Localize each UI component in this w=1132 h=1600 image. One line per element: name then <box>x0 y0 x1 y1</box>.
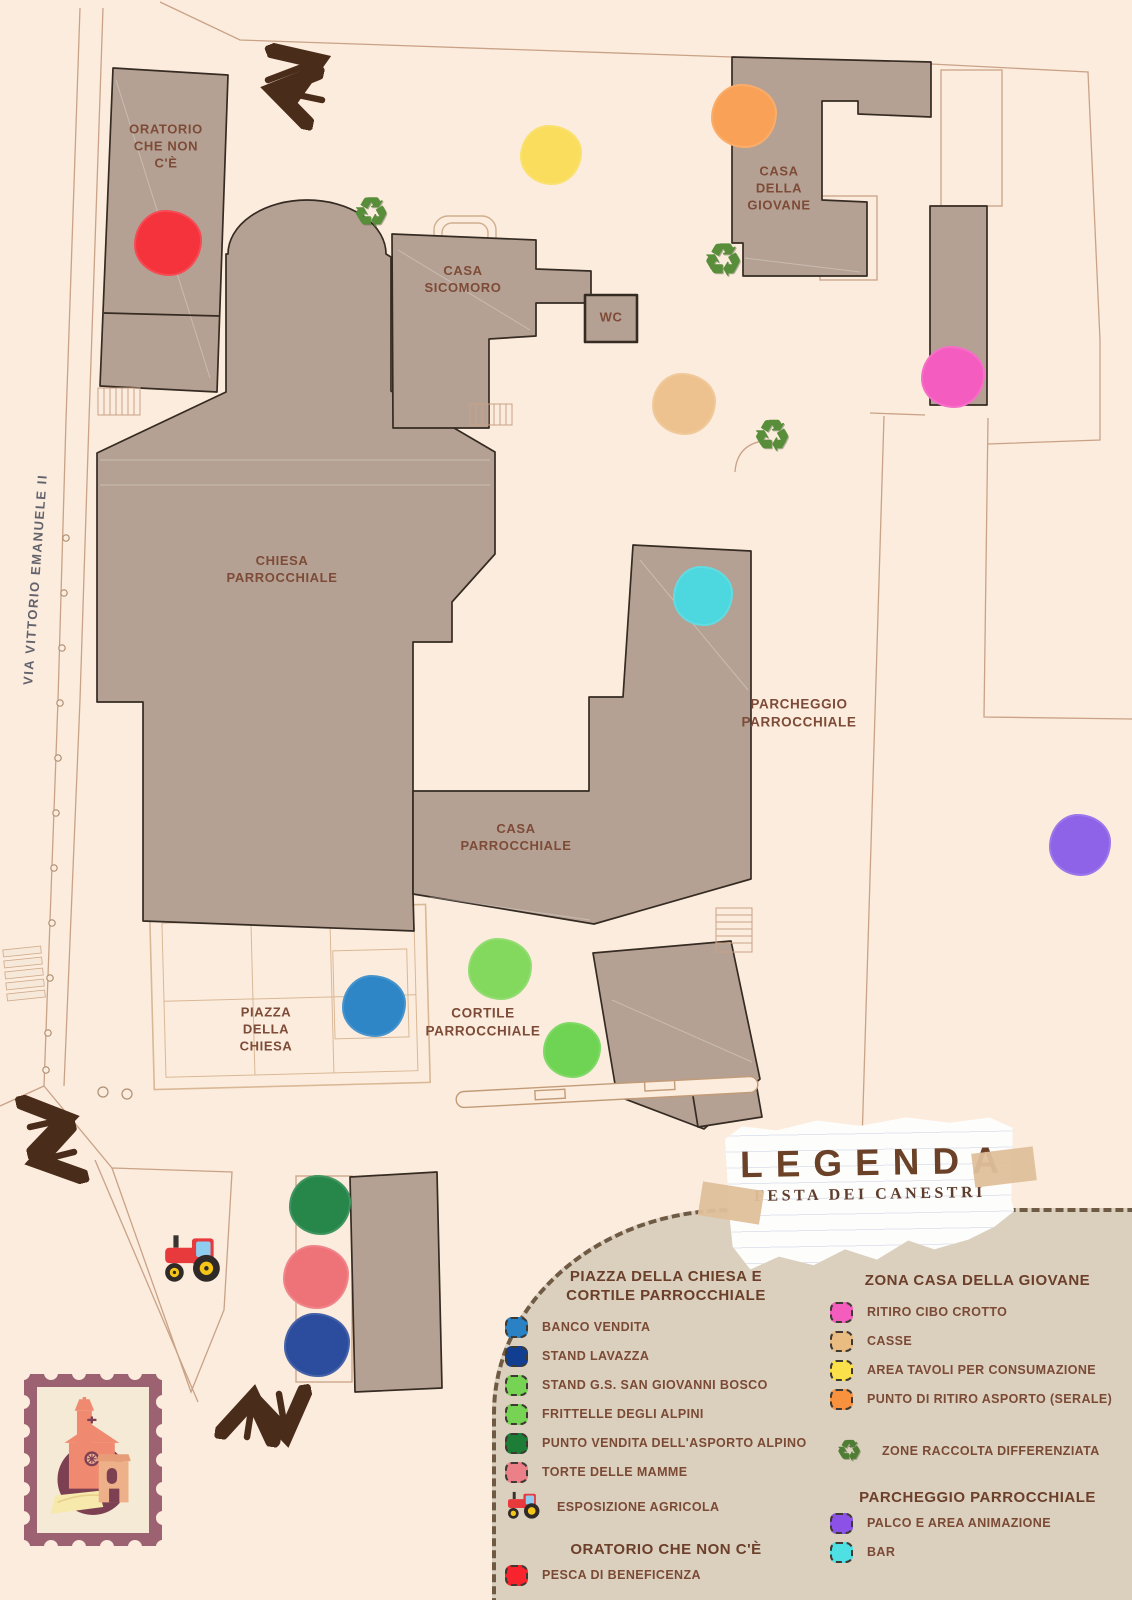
tractor-icon <box>160 1232 226 1289</box>
color-swatch <box>505 1565 528 1586</box>
label-wc: WC <box>600 310 623 327</box>
recycle-icon: ♻ <box>830 1437 868 1465</box>
label-casa-sicomoro: CASA SICOMORO <box>424 263 501 297</box>
legend-item-palco: PALCO E AREA ANIMAZIONE <box>830 1512 1125 1535</box>
tractor-icon <box>505 1490 543 1525</box>
legend-title: LEGENDA <box>725 1139 1014 1186</box>
legend-item-label: PESCA DI BENEFICENZA <box>542 1568 701 1582</box>
recycle-icon: ♻ <box>753 415 791 457</box>
legend-section-heading: ORATORIO CHE NON C'È <box>505 1541 827 1558</box>
legend-section-heading: ZONA CASA DELLA GIOVANE <box>830 1272 1125 1291</box>
legend-item-label: PUNTO DI RITIRO ASPORTO (SERALE) <box>867 1392 1112 1406</box>
recycle-icon: ♻ <box>353 193 389 233</box>
legend-item-label: BANCO VENDITA <box>542 1320 650 1334</box>
color-swatch <box>830 1331 853 1352</box>
legend-item-ritiro-cibo: RITIRO CIBO CROTTO <box>830 1301 1125 1324</box>
arrow-south-down <box>279 1394 286 1434</box>
legend-item-banco-vendita: BANCO VENDITA <box>505 1316 827 1339</box>
label-casa-della-giovane: CASA DELLA GIOVANE <box>747 164 810 215</box>
color-swatch <box>505 1375 528 1396</box>
label-chiesa: CHIESA PARROCCHIALE <box>227 553 338 587</box>
legend-item-bar: BAR <box>830 1541 1125 1564</box>
color-swatch <box>830 1513 853 1534</box>
legend-item-label: RITIRO CIBO CROTTO <box>867 1305 1007 1319</box>
legend-item-label: FRITTELLE DEGLI ALPINI <box>542 1407 704 1421</box>
arrow-west-in <box>30 1119 66 1127</box>
legend-item-label: BAR <box>867 1545 895 1559</box>
legend-item-torte: TORTE DELLE MAMME <box>505 1461 827 1484</box>
color-swatch <box>830 1360 853 1381</box>
church-stamp <box>24 1374 162 1546</box>
legend-item-label: TORTE DELLE MAMME <box>542 1465 687 1479</box>
legend-column-right: ZONA CASA DELLA GIOVANE RITIRO CIBO CROT… <box>830 1272 1125 1570</box>
legend-item-stand-lavazza: STAND LAVAZZA <box>505 1345 827 1368</box>
label-oratorio: ORATORIO CHE NON C'È <box>129 122 203 173</box>
color-swatch <box>830 1542 853 1563</box>
legend-item-label: PALCO E AREA ANIMAZIONE <box>867 1516 1051 1530</box>
legend-item-pesca: PESCA DI BENEFICENZA <box>505 1564 827 1587</box>
legend-item-label: ZONE RACCOLTA DIFFERENZIATA <box>882 1444 1100 1458</box>
legend-item-label: AREA TAVOLI PER CONSUMAZIONE <box>867 1363 1096 1377</box>
arrow-top-right <box>268 61 318 80</box>
legend-item-frittelle: FRITTELLE DEGLI ALPINI <box>505 1403 827 1426</box>
crosswalk <box>3 946 46 1001</box>
label-piazza: PIAZZA DELLA CHIESA <box>240 1005 293 1056</box>
legend-item-label: STAND G.S. SAN GIOVANNI BOSCO <box>542 1378 768 1392</box>
legend-subtitle: FESTA DEI CANESTRI <box>726 1183 1014 1206</box>
building-south-block <box>350 1172 442 1392</box>
color-swatch <box>505 1404 528 1425</box>
legend-item-casse: CASSE <box>830 1330 1125 1353</box>
color-swatch <box>505 1462 528 1483</box>
color-swatch <box>505 1433 528 1454</box>
label-casa-parrocchiale: CASA PARROCCHIALE <box>461 821 572 855</box>
recycle-icon: ♻ <box>703 239 742 283</box>
legend-item-esposizione-agricola: ESPOSIZIONE AGRICOLA <box>505 1490 827 1525</box>
legend-item-label: ESPOSIZIONE AGRICOLA <box>557 1500 719 1514</box>
legend-item-punto-vendita-alpino: PUNTO VENDITA DELL'ASPORTO ALPINO <box>505 1432 827 1455</box>
legend-item-punto-ritiro-serale: PUNTO DI RITIRO ASPORTO (SERALE) <box>830 1388 1125 1411</box>
arrow-west-out <box>38 1152 74 1161</box>
legend-item-label: CASSE <box>867 1334 912 1348</box>
color-swatch <box>830 1302 853 1323</box>
festival-map-poster: ♻ ♻ ♻ VIA VITTORIO EMANUELE II ORATORIO … <box>0 0 1132 1600</box>
legend-section-heading: PIAZZA DELLA CHIESA E CORTILE PARROCCHIA… <box>505 1268 827 1306</box>
color-swatch <box>505 1317 528 1338</box>
arrow-south-up <box>247 1398 253 1437</box>
legend-item-stand-gs: STAND G.S. SAN GIOVANNI BOSCO <box>505 1374 827 1397</box>
legend-column-left: PIAZZA DELLA CHIESA E CORTILE PARROCCHIA… <box>505 1268 827 1593</box>
legend-item-area-tavoli: AREA TAVOLI PER CONSUMAZIONE <box>830 1359 1125 1382</box>
label-parcheggio: PARCHEGGIO PARROCCHIALE <box>742 695 857 730</box>
legend-item-raccolta-differenziata: ♻ ZONE RACCOLTA DIFFERENZIATA <box>830 1437 1125 1465</box>
church-stamp-illustration <box>37 1387 149 1533</box>
color-swatch <box>505 1346 528 1367</box>
color-swatch <box>830 1389 853 1410</box>
label-cortile: CORTILE PARROCCHIALE <box>426 1004 541 1039</box>
legend-item-label: STAND LAVAZZA <box>542 1349 649 1363</box>
legend-section-heading: PARCHEGGIO PARROCCHIALE <box>830 1489 1125 1506</box>
legend-item-label: PUNTO VENDITA DELL'ASPORTO ALPINO <box>542 1436 807 1450</box>
arrow-top-left <box>274 90 322 100</box>
